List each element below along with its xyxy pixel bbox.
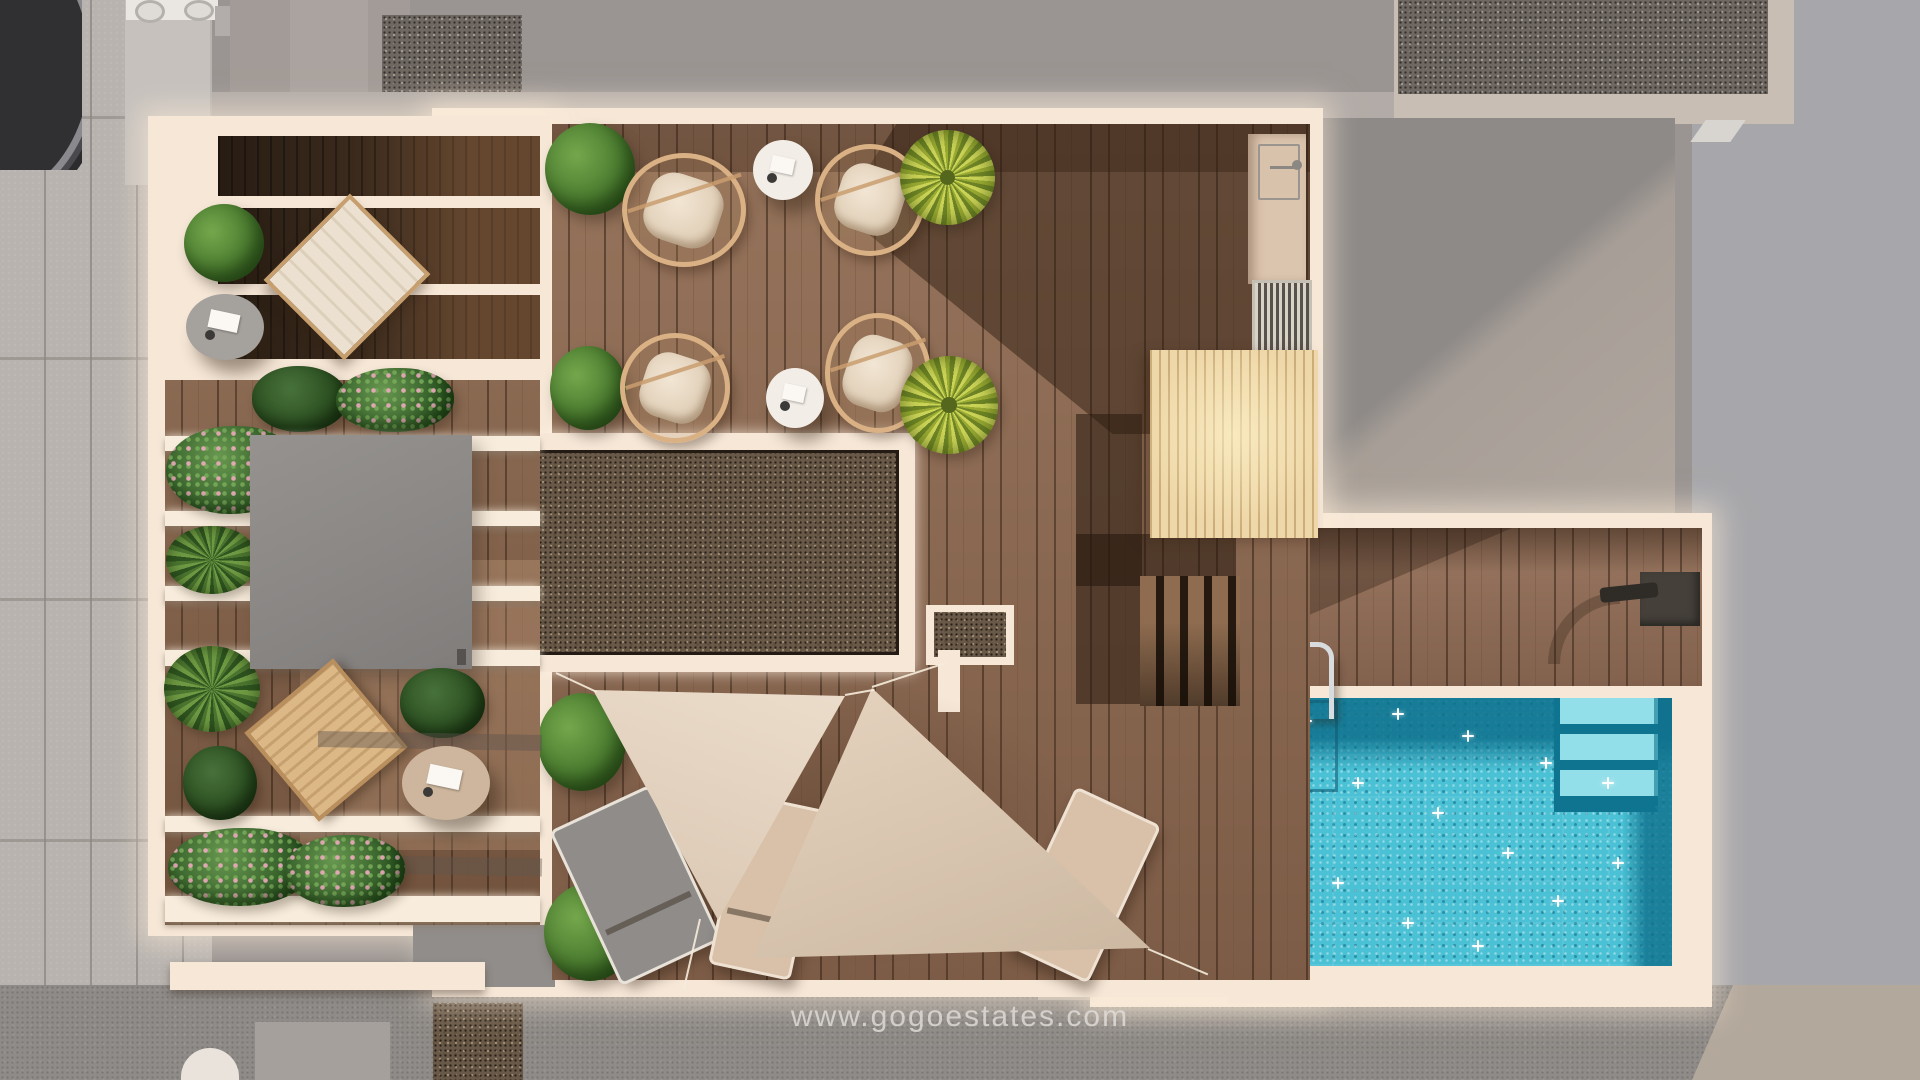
balcony-bottom-edge — [170, 962, 485, 990]
curved-canopy-body — [0, 0, 82, 170]
bottom-light-slab — [255, 1022, 390, 1080]
pool-steps — [1554, 698, 1658, 812]
kitchen-faucet-arm — [1270, 166, 1296, 169]
deck-bush — [545, 123, 635, 215]
pergola-row — [218, 136, 540, 196]
gray-awning-box — [250, 435, 472, 669]
outdoor-shower — [1640, 572, 1700, 626]
balcony-plant — [183, 746, 257, 820]
balcony-flower-shrub — [336, 368, 454, 432]
rooftop-terrace-render: www.gogoestates.com — [0, 0, 1920, 1080]
balcony-plant — [252, 366, 348, 432]
water-sparkle-icon — [1432, 812, 1444, 814]
yellow-palm — [900, 130, 995, 225]
balcony-yucca — [166, 526, 258, 594]
watermark-text: www.gogoestates.com — [791, 1000, 1129, 1034]
kitchen-sink — [1258, 144, 1300, 200]
neighbor-building-roof — [1323, 118, 1675, 538]
wicker-chair — [622, 153, 746, 267]
gravel-roof-right — [1398, 0, 1768, 94]
bottom-gravel-patch — [433, 1003, 523, 1080]
water-sparkle-icon — [1402, 922, 1414, 924]
side-table-beige — [402, 746, 490, 820]
bistro-table — [766, 368, 824, 428]
balcony-agave — [164, 646, 260, 732]
deck-bush — [550, 346, 626, 430]
water-sparkle-icon — [1462, 735, 1474, 737]
deck-stairs — [1140, 576, 1240, 706]
bistro-table — [753, 140, 813, 200]
water-sparkle-icon — [1612, 862, 1624, 864]
pine-slat-platform — [1150, 350, 1318, 538]
gravel-roof-left — [382, 15, 522, 93]
cool-gray-street-right — [1692, 0, 1920, 1080]
water-sparkle-icon — [1552, 900, 1564, 902]
water-sparkle-icon — [1472, 945, 1484, 947]
yellow-palm — [900, 356, 998, 454]
curved-canopy-object — [0, 0, 82, 170]
balcony-plant — [400, 668, 485, 738]
balcony-flower-shrub — [285, 835, 405, 907]
barbecue-grill — [1252, 280, 1312, 358]
water-sparkle-icon — [1352, 782, 1364, 784]
skylight-gravel — [488, 450, 899, 655]
water-sparkle-icon — [1502, 852, 1514, 854]
water-sparkle-icon — [1602, 782, 1614, 784]
roof-vent-icon — [184, 0, 214, 21]
balcony-bush — [184, 204, 264, 282]
wicker-chair — [620, 333, 730, 443]
roof-vent-icon — [135, 0, 165, 23]
water-sparkle-icon — [1540, 762, 1552, 764]
side-table-gray — [186, 294, 264, 360]
water-sparkle-icon — [1392, 713, 1404, 715]
water-sparkle-icon — [1332, 882, 1344, 884]
